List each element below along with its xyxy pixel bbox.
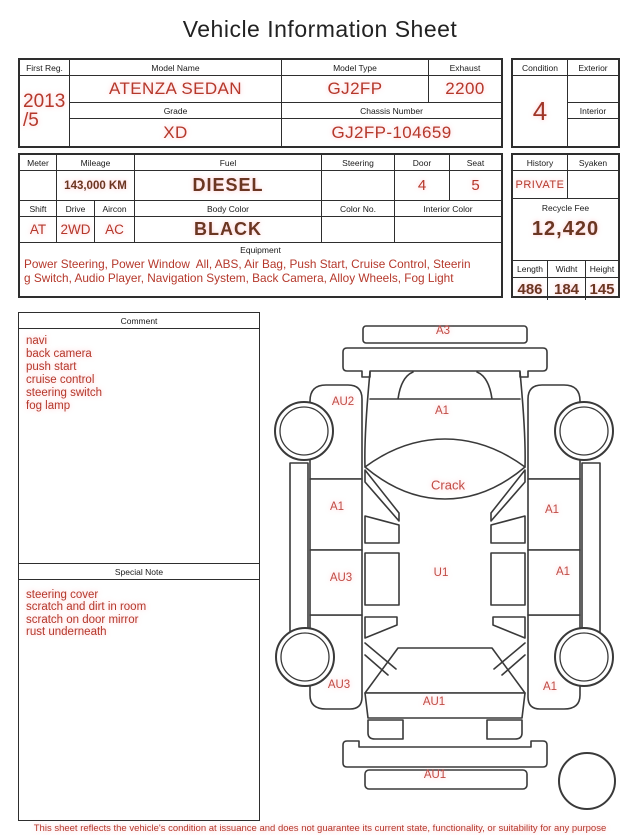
car-front-door-left <box>310 479 362 550</box>
door-value: 4 <box>395 171 450 201</box>
page-title: Vehicle Information Sheet <box>0 16 640 43</box>
text-line: push start <box>26 361 255 374</box>
condition-value: 4 <box>513 76 568 146</box>
footer-disclaimer: This sheet reflects the vehicle's condit… <box>0 823 640 834</box>
fuel-value: DIESEL <box>135 171 322 201</box>
text-line: back camera <box>26 348 255 361</box>
interior-label: Interior <box>568 103 618 119</box>
special-note-header: Special Note <box>19 564 259 580</box>
door-label: Door <box>395 155 450 171</box>
recycle-fee-value: 12,420 <box>513 218 618 241</box>
car-front-window-right <box>491 516 525 543</box>
shift-label: Shift <box>20 201 57 217</box>
text-line: fog lamp <box>26 400 255 413</box>
equipment-label: Equipment <box>20 243 501 256</box>
syaken-value <box>568 171 618 198</box>
history-fee-table: History Syaken PRIVATE Recycle Fee 12,42… <box>511 153 620 298</box>
seat-label: Seat <box>450 155 501 171</box>
text-line: rust underneath <box>26 626 255 638</box>
length-value: 486 <box>513 278 548 300</box>
interior-color-label: Interior Color <box>395 201 501 217</box>
car-sill-left <box>290 463 308 633</box>
recycle-fee-label: Recycle Fee <box>513 203 618 213</box>
drive-value: 2WD <box>57 217 95 243</box>
identification-table: First Reg. Model Name Model Type Exhaust… <box>18 58 503 148</box>
text-line: cruise control <box>26 374 255 387</box>
text-line: steering cover <box>26 589 255 601</box>
text-line: Power Steering, Power Window All, ABS, A… <box>24 258 471 272</box>
car-rear-lower-bar <box>365 770 527 789</box>
condition-label: Condition <box>513 60 568 76</box>
car-front-bumper <box>363 326 527 343</box>
exterior-label: Exterior <box>568 60 618 76</box>
interior-value <box>568 119 618 146</box>
text-line: g Switch, Audio Player, Navigation Syste… <box>24 272 453 286</box>
text-line: scratch and dirt in room <box>26 601 255 613</box>
steering-label: Steering <box>322 155 395 171</box>
width-label: Widht <box>548 261 586 278</box>
car-rear-window-left <box>365 553 399 605</box>
steering-value <box>322 171 395 201</box>
equipment-lines: Power Steering, Power Window All, ABS, A… <box>20 256 501 296</box>
body-color-value: BLACK <box>135 217 322 243</box>
aircon-label: Aircon <box>95 201 135 217</box>
condition-table: Condition Exterior 4 Interior <box>511 58 620 148</box>
text-line: scratch on door mirror <box>26 614 255 626</box>
body-color-label: Body Color <box>135 201 322 217</box>
first-reg-label: First Reg. <box>20 60 70 76</box>
history-label: History <box>513 155 568 171</box>
height-label: Height <box>586 261 618 278</box>
fuel-label: Fuel <box>135 155 322 171</box>
model-type-label: Model Type <box>282 60 429 76</box>
chassis-number-value: GJ2FP-104659 <box>282 119 501 146</box>
mileage-value: 143,000 KM <box>57 171 135 201</box>
length-label: Length <box>513 261 548 278</box>
car-rear-panel-left <box>368 720 403 739</box>
car-quarter-glass-left <box>365 617 397 638</box>
car-windshield <box>365 439 525 499</box>
spec-table: Meter Mileage Fuel Steering Door Seat 14… <box>18 153 503 298</box>
drive-label: Drive <box>57 201 95 217</box>
meter-value <box>20 171 57 201</box>
car-sill-right <box>582 463 600 633</box>
first-reg-value: 2013 /5 <box>20 76 70 146</box>
mileage-label: Mileage <box>57 155 135 171</box>
model-type-value: GJ2FP <box>282 76 429 103</box>
syaken-label: Syaken <box>568 155 618 171</box>
special-note-box: Special Note steering coverscratch and d… <box>18 563 260 821</box>
special-note-lines: steering coverscratch and dirt in roomsc… <box>19 580 259 639</box>
first-reg-month: /5 <box>23 111 39 130</box>
car-rear-glass <box>365 648 525 693</box>
shift-value: AT <box>20 217 57 243</box>
car-rear-door-right <box>528 550 580 615</box>
car-spare-tire <box>559 753 615 809</box>
comment-box: Comment naviback camerapush startcruise … <box>18 312 260 563</box>
text-line: steering switch <box>26 387 255 400</box>
history-value: PRIVATE <box>513 171 568 198</box>
dimensions-section: Length Widht Height 486 184 145 <box>513 261 618 300</box>
history-section: History Syaken PRIVATE <box>513 155 618 199</box>
model-name-value: ATENZA SEDAN <box>70 76 282 103</box>
exterior-value <box>568 76 618 103</box>
aircon-value: AC <box>95 217 135 243</box>
car-rear-bumper <box>343 741 547 767</box>
car-front-door-right <box>528 479 580 550</box>
car-cowl-lines <box>370 372 520 399</box>
seat-value: 5 <box>450 171 501 201</box>
model-name-label: Model Name <box>70 60 282 76</box>
color-no-value <box>322 217 395 243</box>
car-diagram <box>270 305 640 815</box>
meter-label: Meter <box>20 155 57 171</box>
exhaust-value: 2200 <box>429 76 501 103</box>
height-value: 145 <box>586 278 618 300</box>
chassis-number-label: Chassis Number <box>282 103 501 119</box>
width-value: 184 <box>548 278 586 300</box>
color-no-label: Color No. <box>322 201 395 217</box>
interior-color-value <box>395 217 501 243</box>
car-rear-window-right <box>491 553 525 605</box>
grade-value: XD <box>70 119 282 146</box>
exhaust-label: Exhaust <box>429 60 501 76</box>
vehicle-information-sheet: Vehicle Information Sheet First Reg. Mod… <box>0 0 640 835</box>
car-quarter-glass-right <box>493 617 525 638</box>
recycle-fee-section: Recycle Fee 12,420 <box>513 203 618 261</box>
grade-label: Grade <box>70 103 282 119</box>
text-line: navi <box>26 335 255 348</box>
car-rear-door-left <box>310 550 362 615</box>
car-front-panel <box>343 348 547 377</box>
first-reg-year: 2013 <box>23 92 65 111</box>
car-front-window-left <box>365 516 399 543</box>
comment-header: Comment <box>19 313 259 329</box>
car-trunk <box>365 693 525 718</box>
comment-lines: naviback camerapush startcruise controls… <box>19 329 259 413</box>
car-rear-panel-right <box>487 720 522 739</box>
